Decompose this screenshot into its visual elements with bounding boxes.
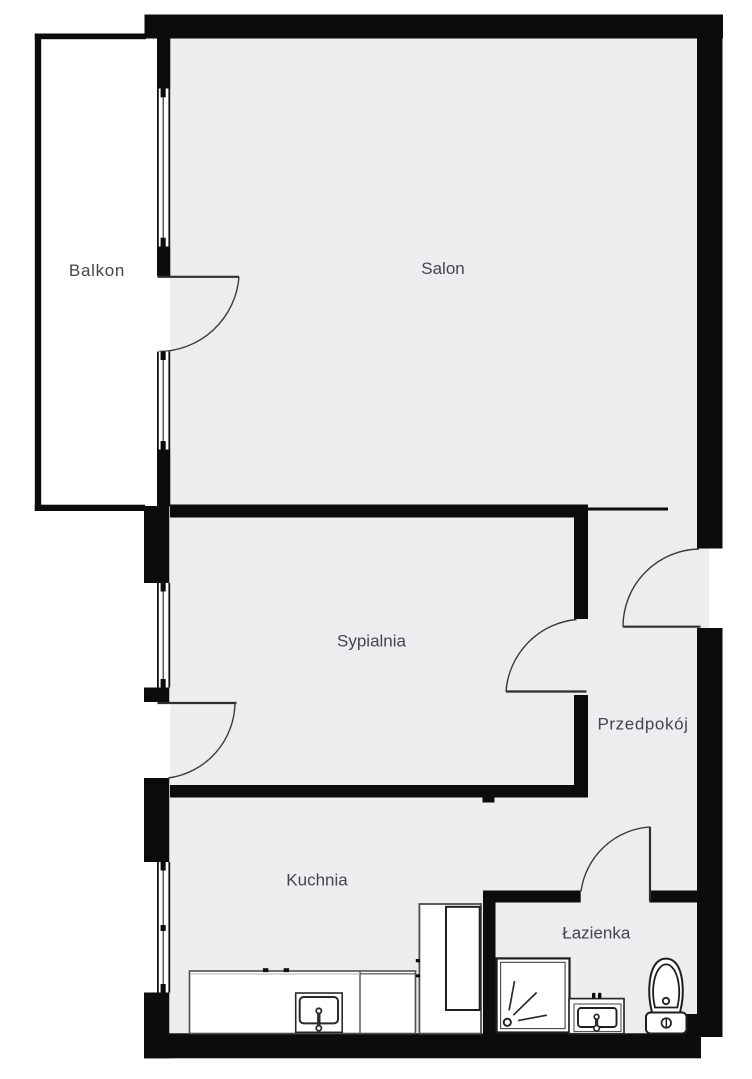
svg-text:Przedpokój: Przedpokój [597, 714, 688, 733]
svg-text:Balkon: Balkon [69, 261, 125, 280]
svg-text:Kuchnia: Kuchnia [286, 871, 348, 890]
svg-text:Łazienka: Łazienka [562, 924, 631, 943]
svg-text:Sypialnia: Sypialnia [337, 631, 407, 650]
svg-text:Salon: Salon [421, 259, 464, 278]
